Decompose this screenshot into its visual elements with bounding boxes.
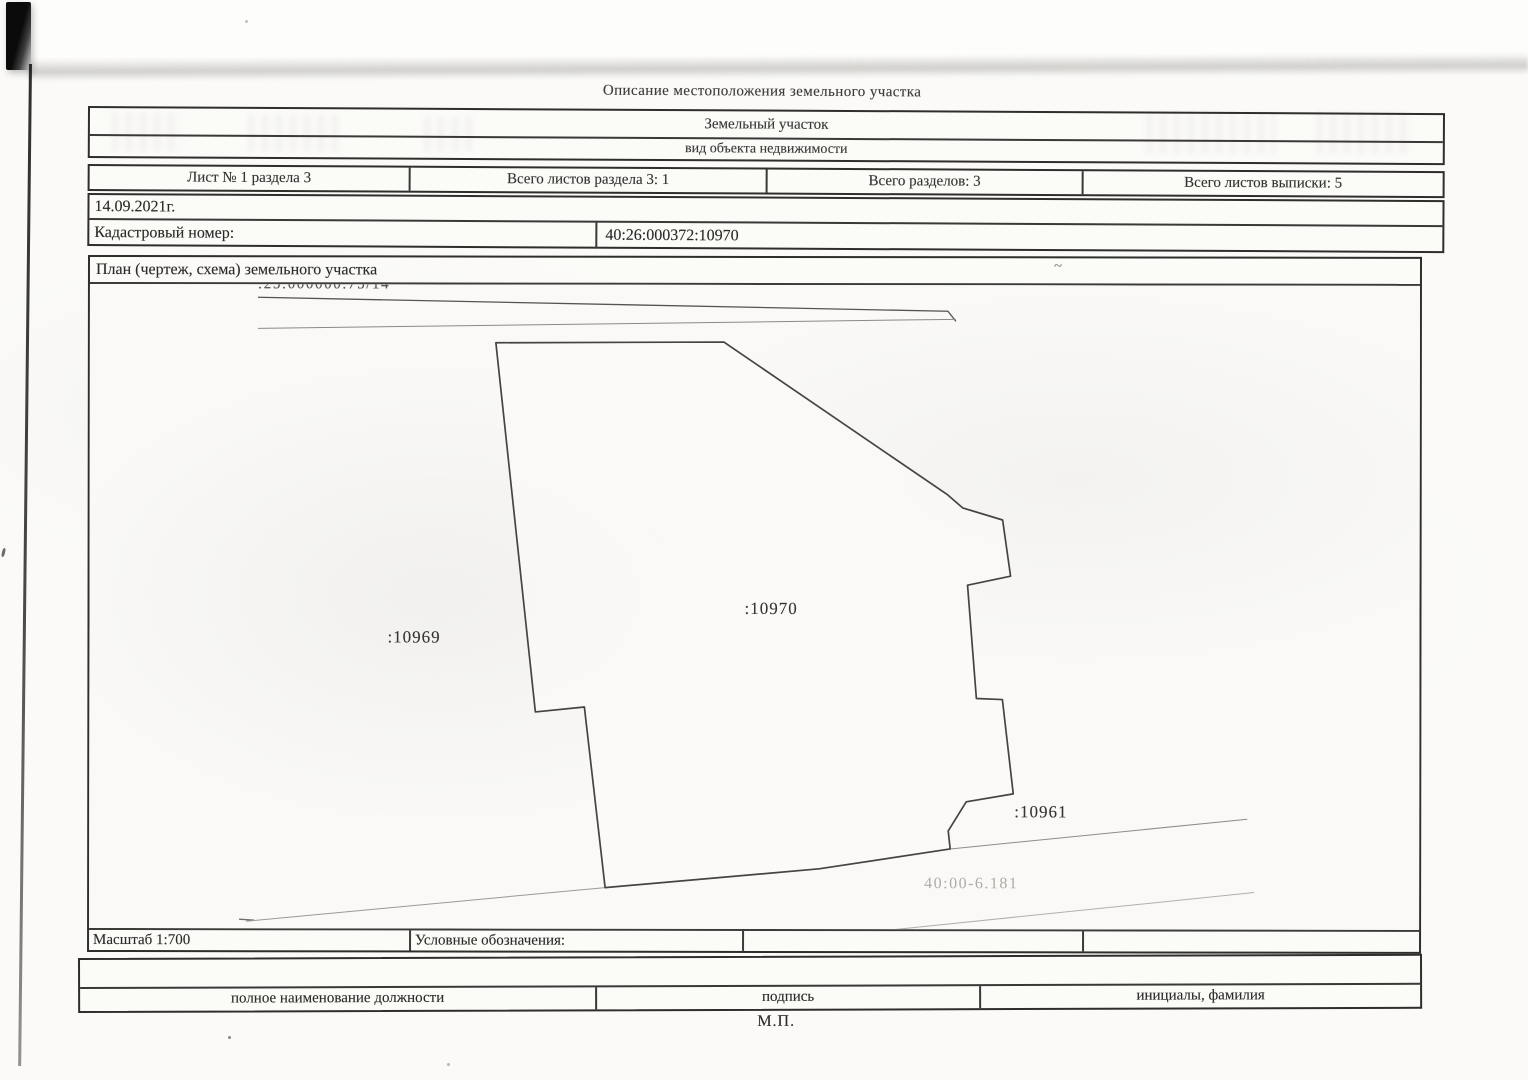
signature-empty-row xyxy=(80,956,1420,989)
scanned-document-page: Описание местоположения земельного участ… xyxy=(0,0,1528,1080)
signature-label: подпись xyxy=(597,986,981,1009)
position-label: полное наименование должности xyxy=(80,987,597,1011)
name-label: инициалы, фамилия xyxy=(981,985,1420,1008)
signature-section: полное наименование должности подпись ин… xyxy=(0,0,1528,1080)
stamp-place-label: М.П. xyxy=(700,1013,852,1031)
signature-table: полное наименование должности подпись ин… xyxy=(78,954,1422,1013)
